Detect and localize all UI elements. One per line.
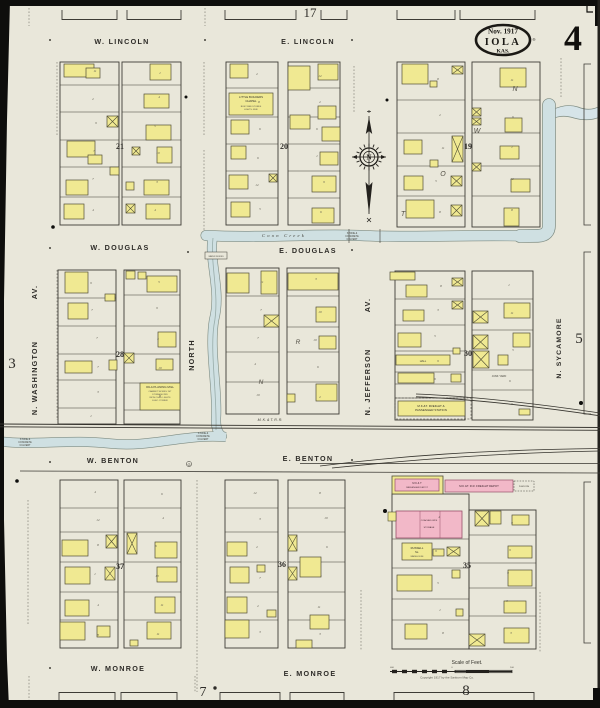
svg-text:20: 20: [280, 142, 288, 151]
svg-text:9: 9: [435, 549, 437, 553]
svg-text:6: 6: [155, 544, 157, 548]
svg-text:5: 5: [259, 207, 261, 211]
svg-text:7: 7: [91, 308, 93, 312]
svg-text:3: 3: [259, 517, 261, 521]
svg-text:JUNK YARD: JUNK YARD: [492, 374, 507, 378]
svg-text:7: 7: [259, 576, 261, 580]
svg-text:COACHES WKS: COACHES WKS: [421, 519, 438, 522]
svg-text:11: 11: [510, 78, 513, 82]
svg-text:2: 2: [256, 545, 258, 549]
svg-text:ELEC: POWER: ELEC: POWER: [152, 400, 168, 402]
svg-text:36: 36: [278, 560, 286, 569]
svg-text:11: 11: [93, 69, 96, 73]
svg-text:W. DOUGLAS: W. DOUGLAS: [90, 243, 149, 252]
svg-text:35: 35: [463, 561, 471, 570]
svg-text:2: 2: [257, 604, 259, 608]
svg-text:N: N: [366, 154, 371, 162]
svg-text:12: 12: [510, 177, 514, 181]
svg-text:KAS.: KAS.: [497, 49, 511, 55]
svg-text:9: 9: [437, 359, 439, 363]
svg-text:7: 7: [92, 177, 94, 181]
svg-text:8: 8: [439, 210, 441, 214]
svg-text:N. JEFFERSON: N. JEFFERSON: [363, 349, 372, 416]
svg-text:17: 17: [304, 5, 318, 20]
svg-text:NORTH: NORTH: [187, 339, 196, 371]
svg-text:12: 12: [318, 74, 322, 78]
svg-text:CULVERT: CULVERT: [347, 238, 358, 241]
svg-text:19: 19: [464, 142, 472, 151]
svg-text:1: 1: [511, 145, 513, 149]
svg-text:4: 4: [438, 515, 440, 519]
svg-text:5: 5: [158, 280, 160, 284]
svg-text:12: 12: [255, 183, 259, 187]
svg-text:8: 8: [97, 543, 99, 547]
svg-text:3: 3: [315, 277, 317, 281]
svg-text:N. SYCAMORE: N. SYCAMORE: [556, 317, 563, 378]
svg-text:R: R: [296, 339, 301, 346]
svg-text:®: ®: [533, 37, 536, 42]
svg-text:7: 7: [97, 365, 99, 369]
svg-text:10: 10: [324, 516, 328, 520]
svg-text:AV.: AV.: [363, 298, 372, 312]
svg-text:6: 6: [320, 210, 322, 214]
svg-text:1: 1: [94, 572, 96, 576]
svg-text:4: 4: [564, 18, 582, 58]
svg-text:M. K. & T. R. R.: M. K. & T. R. R.: [258, 418, 283, 422]
svg-text:Copyright 1917 by the Sanborn: Copyright 1917 by the Sanborn Map Co.: [420, 676, 474, 680]
svg-text:4: 4: [154, 208, 156, 212]
svg-text:3: 3: [97, 390, 99, 394]
svg-text:Coon Creek: Coon Creek: [262, 233, 306, 238]
svg-text:6: 6: [257, 156, 259, 160]
svg-text:6: 6: [259, 127, 261, 131]
svg-text:8: 8: [462, 683, 470, 699]
svg-text:11: 11: [317, 605, 320, 609]
svg-text:12: 12: [253, 491, 257, 495]
svg-text:3: 3: [156, 180, 158, 184]
svg-text:3: 3: [8, 356, 16, 372]
svg-text:O: O: [440, 171, 446, 178]
svg-text:N. WASHINGTON: N. WASHINGTON: [30, 341, 39, 415]
svg-text:10: 10: [155, 574, 159, 578]
svg-text:9: 9: [511, 521, 513, 525]
svg-text:WATER WORKS: WATER WORKS: [208, 255, 224, 258]
svg-text:IOLA: IOLA: [485, 37, 521, 48]
svg-text:21: 21: [116, 142, 124, 151]
svg-text:Nov. 1917: Nov. 1917: [488, 28, 518, 36]
svg-text:6: 6: [161, 492, 163, 496]
svg-text:10: 10: [318, 310, 322, 314]
svg-text:5: 5: [575, 331, 583, 347]
svg-text:8: 8: [97, 633, 99, 637]
svg-text:11: 11: [260, 280, 263, 284]
svg-text:4: 4: [94, 490, 96, 494]
svg-text:10: 10: [256, 393, 260, 397]
svg-text:2: 2: [319, 395, 321, 399]
svg-text:8: 8: [511, 208, 513, 212]
svg-text:W. LINCOLN: W. LINCOLN: [94, 37, 149, 46]
svg-text:1: 1: [159, 71, 161, 75]
svg-text:W. MONROE: W. MONROE: [91, 664, 145, 673]
svg-text:6: 6: [509, 379, 511, 383]
svg-text:4: 4: [92, 208, 94, 212]
svg-text:11: 11: [441, 146, 444, 150]
svg-text:7: 7: [260, 308, 262, 312]
svg-text:1: 1: [90, 414, 92, 418]
svg-text:4: 4: [158, 95, 160, 99]
svg-text:8: 8: [159, 394, 161, 398]
svg-text:6: 6: [512, 115, 514, 119]
svg-text:M.K.&T. R.R. FREIGHT DEPOT: M.K.&T. R.R. FREIGHT DEPOT: [459, 484, 499, 488]
svg-text:6: 6: [317, 365, 319, 369]
svg-text:Scale of Feet.: Scale of Feet.: [452, 660, 483, 666]
svg-text:7: 7: [257, 336, 259, 340]
svg-text:5: 5: [512, 348, 514, 352]
svg-text:1: 1: [439, 608, 441, 612]
svg-text:9: 9: [509, 548, 511, 552]
svg-text:9: 9: [511, 402, 513, 406]
svg-text:5: 5: [435, 179, 437, 183]
svg-text:1: 1: [320, 574, 322, 578]
svg-text:10: 10: [156, 151, 160, 155]
svg-text:6: 6: [316, 127, 318, 131]
svg-text:10: 10: [158, 366, 162, 370]
svg-text:E. MONROE: E. MONROE: [284, 669, 337, 678]
svg-text:T: T: [401, 211, 406, 218]
svg-text:E. BENTON: E. BENTON: [283, 454, 334, 463]
svg-text:CABINET WORKS 1ST: CABINET WORKS 1ST: [149, 390, 173, 393]
svg-text:3: 3: [259, 630, 261, 634]
svg-text:1: 1: [508, 283, 510, 287]
svg-text:9: 9: [507, 571, 509, 575]
svg-text:CHAPEL: CHAPEL: [245, 99, 257, 103]
svg-text:5: 5: [154, 124, 156, 128]
svg-text:9: 9: [434, 377, 436, 381]
svg-text:G: G: [187, 462, 190, 467]
svg-text:3: 3: [157, 337, 159, 341]
svg-text:CULVERT: CULVERT: [20, 444, 31, 447]
svg-text:4: 4: [162, 516, 164, 520]
svg-text:2: 2: [256, 72, 258, 76]
svg-text:37: 37: [116, 562, 124, 571]
svg-text:6: 6: [326, 545, 328, 549]
svg-text:8: 8: [442, 631, 444, 635]
svg-text:RUSSELL: RUSSELL: [411, 546, 424, 550]
svg-text:IOLA PLANING MILL: IOLA PLANING MILL: [146, 385, 175, 389]
svg-text:WAREHOUSE: WAREHOUSE: [410, 555, 424, 558]
svg-text:8: 8: [319, 491, 321, 495]
svg-text:28: 28: [116, 350, 124, 359]
svg-text:10: 10: [313, 338, 317, 342]
svg-text:9: 9: [95, 121, 97, 125]
svg-text:E. DOUGLAS: E. DOUGLAS: [279, 246, 337, 255]
svg-text:11: 11: [160, 603, 163, 607]
svg-text:2: 2: [92, 97, 94, 101]
svg-text:E. LINCOLN: E. LINCOLN: [281, 37, 335, 46]
svg-text:CULVERT: CULVERT: [198, 438, 209, 441]
svg-text:8: 8: [258, 100, 260, 104]
svg-text:7: 7: [96, 336, 98, 340]
svg-text:5: 5: [437, 581, 439, 585]
svg-text:BUSY BEE STORES: BUSY BEE STORES: [241, 106, 262, 108]
svg-text:8: 8: [440, 284, 442, 288]
svg-text:11: 11: [156, 632, 159, 636]
svg-text:W. BENTON: W. BENTON: [87, 456, 139, 465]
svg-text:9: 9: [156, 306, 158, 310]
svg-text:30: 30: [464, 349, 472, 358]
svg-text:11: 11: [510, 311, 513, 315]
svg-text:12: 12: [96, 518, 100, 522]
svg-text:9: 9: [90, 281, 92, 285]
svg-text:No.: No.: [415, 551, 419, 554]
svg-text:STORAGE: STORAGE: [424, 526, 435, 529]
svg-text:9: 9: [323, 180, 325, 184]
svg-text:8: 8: [437, 77, 439, 81]
svg-text:3: 3: [319, 632, 321, 636]
svg-text:HALL: HALL: [420, 359, 427, 363]
svg-text:7: 7: [93, 149, 95, 153]
svg-text:PASSENGER DEPOT: PASSENGER DEPOT: [406, 486, 428, 489]
svg-text:LIGHTS: KER.: LIGHTS: KER.: [244, 109, 259, 111]
svg-text:AV.: AV.: [30, 285, 39, 299]
svg-text:2: 2: [319, 100, 321, 104]
svg-text:M K & T: M K & T: [412, 481, 422, 485]
svg-text:4: 4: [254, 362, 256, 366]
svg-text:4: 4: [97, 603, 99, 607]
svg-text:N: N: [259, 379, 264, 386]
svg-text:3: 3: [437, 308, 439, 312]
svg-text:5: 5: [434, 334, 436, 338]
svg-text:PASSENGER STATION: PASSENGER STATION: [415, 408, 447, 412]
svg-text:1: 1: [316, 154, 318, 158]
svg-text:3: 3: [506, 599, 508, 603]
svg-text:7: 7: [200, 685, 207, 700]
svg-text:PLATFORM: PLATFORM: [519, 485, 530, 488]
svg-text:2: 2: [439, 113, 441, 117]
svg-text:3: 3: [510, 631, 512, 635]
